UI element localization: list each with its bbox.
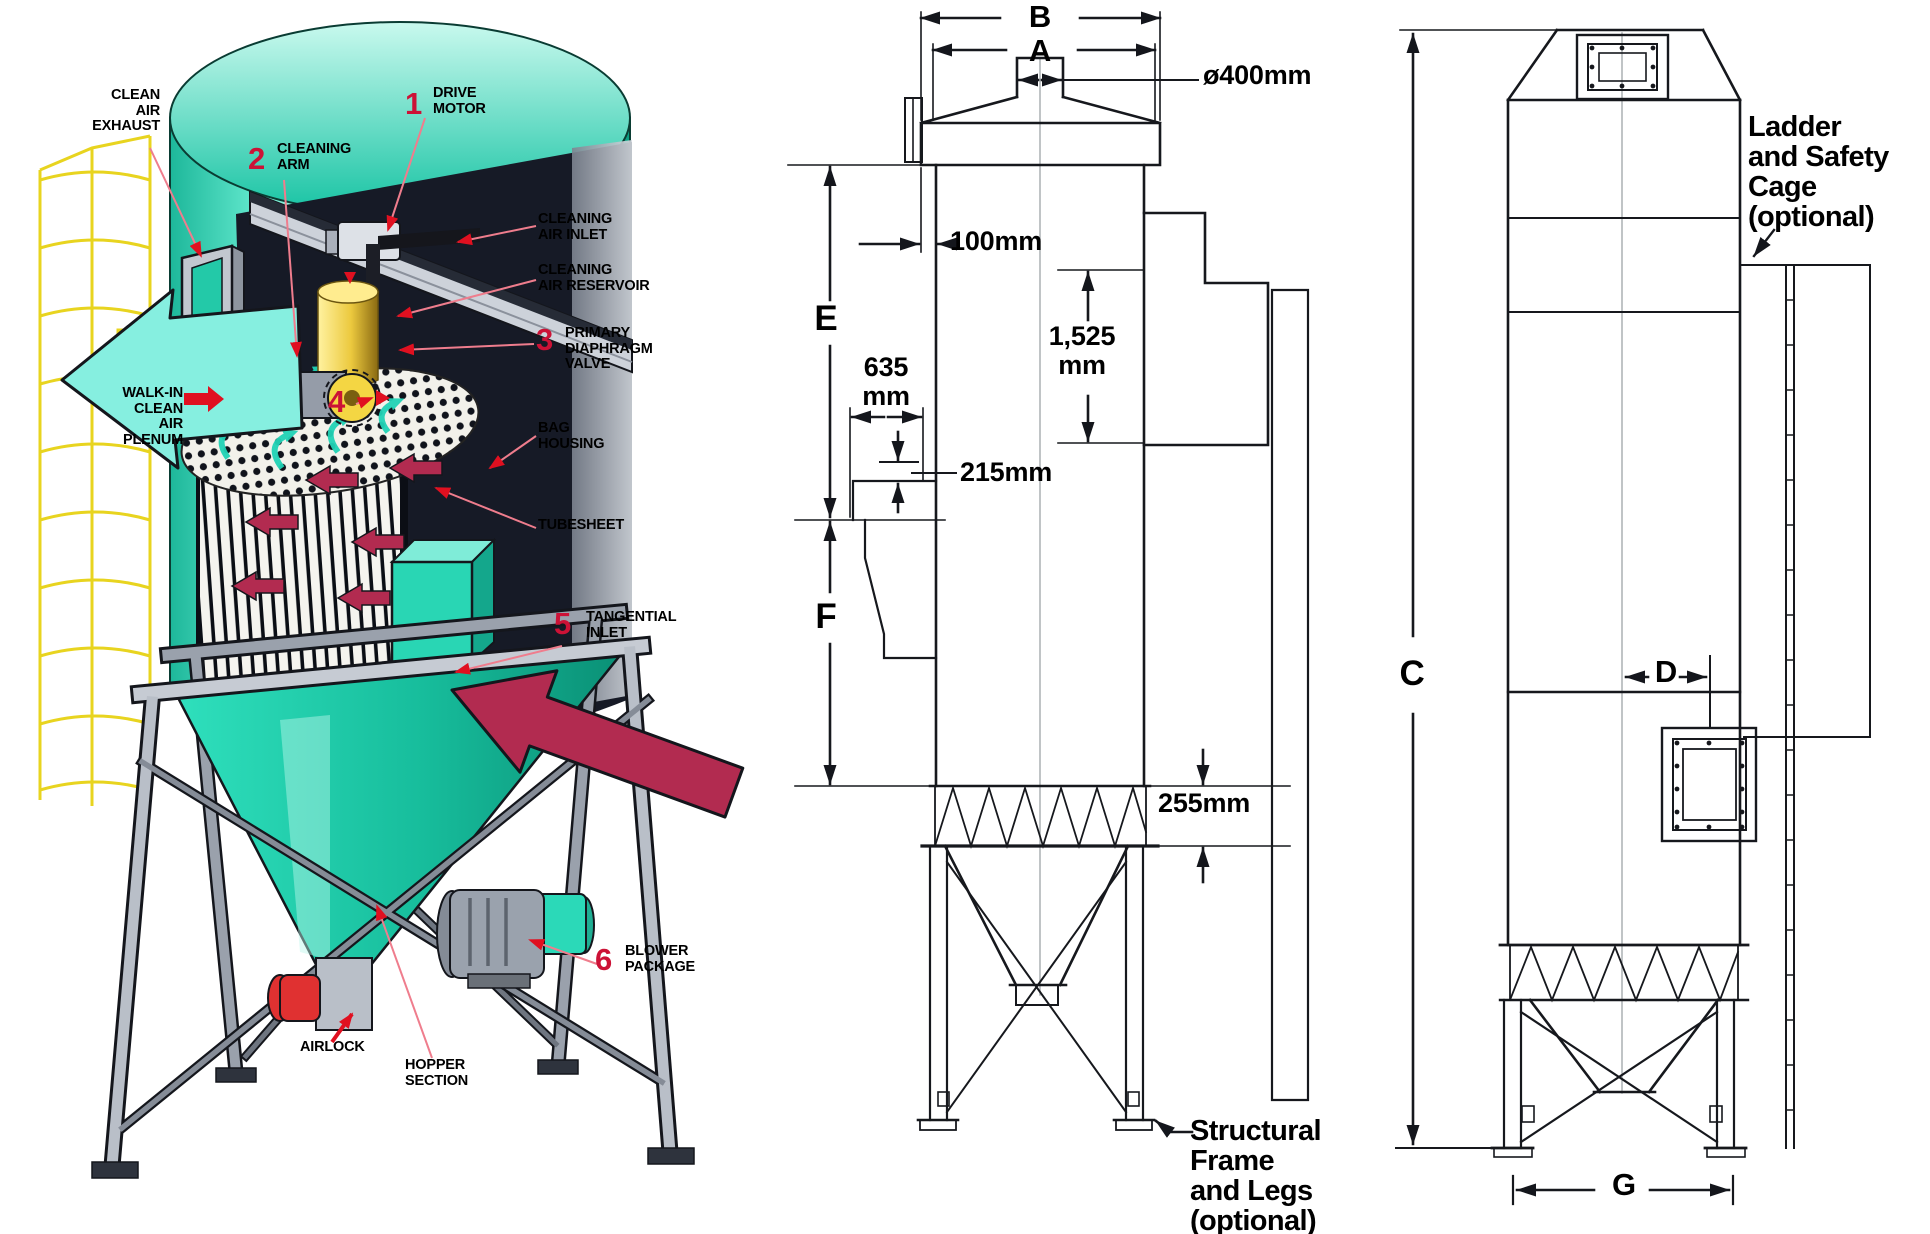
- dim-letter-a: A: [1020, 34, 1060, 67]
- label-bag-housing: BAG HOUSING: [538, 421, 628, 452]
- dim-outlet-diameter: ø400mm: [1203, 61, 1311, 90]
- label-cleaning-arm: CLEANING ARM: [277, 142, 367, 173]
- dim-letter-b: B: [1020, 0, 1060, 33]
- dim-letter-d: D: [1648, 655, 1684, 688]
- callout-6-number: 6: [595, 944, 612, 975]
- label-cleaning-air-reservoir: CLEANING AIR RESERVOIR: [538, 263, 678, 294]
- label-blower-package: BLOWER PACKAGE: [625, 944, 725, 975]
- dim-letter-c: C: [1390, 655, 1434, 692]
- callout-1-number: 1: [405, 88, 422, 119]
- dim-top-offset: 100mm: [950, 227, 1042, 256]
- dim-letter-f: F: [806, 598, 846, 635]
- diagram-page: CLEAN AIR EXHAUST 1 DRIVE MOTOR 2 CLEANI…: [0, 0, 1930, 1234]
- callout-2-number: 2: [248, 143, 265, 174]
- dim-letter-g: G: [1604, 1168, 1644, 1201]
- label-cleaning-air-inlet: CLEANING AIR INLET: [538, 212, 648, 243]
- label-tubesheet: TUBESHEET: [538, 518, 658, 534]
- label-drive-motor: DRIVE MOTOR: [433, 86, 503, 117]
- callout-4-number: 4: [328, 386, 345, 417]
- note-ladder-cage: Ladder and Safety Cage (optional): [1748, 112, 1930, 233]
- dim-inlet-duct-height: 1,525 mm: [1040, 322, 1124, 380]
- cutaway-illustration: [40, 22, 752, 1178]
- label-tangential-inlet: TANGENTIAL INLET: [586, 610, 706, 641]
- label-hopper-section: HOPPER SECTION: [405, 1058, 505, 1089]
- dim-letter-e: E: [806, 300, 846, 337]
- dim-scroll-width: 635 mm: [848, 353, 924, 411]
- label-walk-in-plenum: WALK-IN CLEAN AIR PLENUM: [105, 386, 183, 448]
- diagram-artwork: [0, 0, 1930, 1234]
- callout-5-number: 5: [554, 608, 571, 639]
- label-primary-diaphragm-valve: PRIMARY DIAPHRAGM VALVE: [565, 326, 685, 373]
- dim-flange-gap: 215mm: [960, 458, 1052, 487]
- airlock-graphic: [268, 958, 372, 1030]
- label-airlock: AIRLOCK: [300, 1040, 400, 1056]
- note-structural-frame: Structural Frame and Legs (optional): [1190, 1116, 1390, 1234]
- side-elevation-drawing: [788, 12, 1308, 1132]
- dim-base-ring-height: 255mm: [1158, 789, 1250, 818]
- callout-3-number: 3: [536, 324, 553, 355]
- tangential-inlet-graphic: [392, 540, 494, 662]
- label-clean-air-exhaust: CLEAN AIR EXHAUST: [55, 88, 160, 135]
- ladder-graphic: [1742, 265, 1870, 1148]
